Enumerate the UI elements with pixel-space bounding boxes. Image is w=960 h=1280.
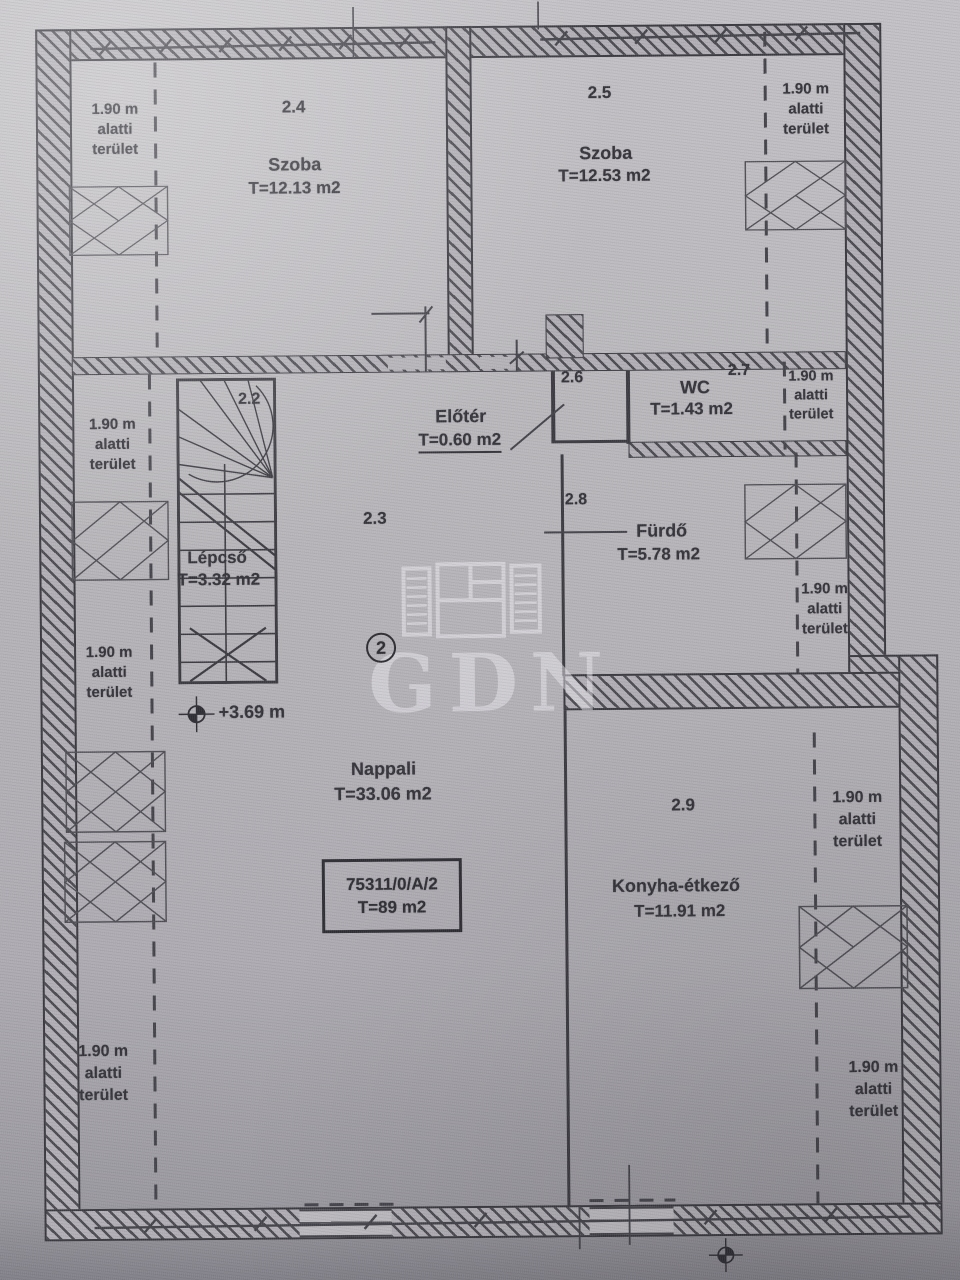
roof-window-symbol-left-mid — [65, 750, 167, 833]
wall-hall-bottom — [551, 440, 630, 444]
room-name-wc: WC — [680, 377, 710, 398]
room-area-wc: T=1.43 m2 — [650, 399, 733, 420]
headroom-label-top-right: 1.90 m alatti terület — [770, 79, 842, 140]
wall-wc-left — [626, 371, 631, 444]
floor-plan-drawing: GDN 2.4 Szoba T=12.13 m2 2.5 Szoba T=12.… — [0, 0, 960, 1280]
headroom-label-bottom-right: 1.90 m alatti terület — [835, 1057, 912, 1124]
parcel-area: T=89 m2 — [358, 895, 427, 919]
stairs-symbol — [176, 378, 278, 685]
room-area-hall: T=0.60 m2 — [418, 430, 501, 454]
wall-kitchen-left — [564, 710, 571, 1207]
level-value-upper: +3.69 m — [218, 702, 285, 724]
wall-bedroom-divider — [445, 26, 474, 372]
room-number-living: 2.3 — [363, 509, 387, 529]
level-marker-icon-bottom — [709, 1238, 743, 1272]
room-name-bedroom2: Szoba — [579, 143, 632, 164]
door-opening-entry — [480, 357, 518, 369]
headroom-label-top-left: 1.90 m alatti terület — [80, 100, 150, 161]
wall-wc-bottom — [628, 440, 846, 458]
room-name-stairs: Lépcső — [187, 548, 247, 568]
wall-bottom — [44, 1202, 942, 1241]
room-number-bedroom2: 2.5 — [588, 83, 612, 103]
room-number-stairs: 2.2 — [238, 391, 260, 409]
gdn-logo-watermark-icon — [397, 557, 548, 644]
headroom-label-bottom-left: 1.90 m alatti terület — [67, 1041, 140, 1108]
room-name-hall: Előtér — [435, 406, 486, 427]
headroom-label-bath: 1.90 m alatti terület — [792, 579, 858, 640]
window-bottom-left — [299, 1209, 391, 1238]
parcel-id: 75311/0/A/2 — [346, 872, 438, 896]
room-number-bedroom1: 2.4 — [282, 97, 306, 117]
wall-hall-left — [551, 371, 556, 442]
roof-window-symbol-left-upper — [71, 500, 170, 581]
roof-window-symbol-bedroom1 — [68, 185, 169, 256]
headroom-label-wc: 1.90 m alatti terület — [780, 367, 842, 424]
roof-window-symbol-bath — [744, 483, 848, 560]
room-area-living: T=33.06 m2 — [334, 783, 432, 805]
room-number-bath: 2.8 — [565, 491, 587, 509]
room-number-wc: 2.7 — [728, 362, 750, 380]
roof-window-symbol-bedroom2 — [744, 160, 847, 231]
roof-window-symbol-kitchen — [798, 905, 909, 990]
room-name-living: Nappali — [351, 759, 416, 781]
floor-number-badge: 2 — [366, 633, 396, 663]
room-area-bedroom1: T=12.13 m2 — [248, 178, 340, 199]
headroom-label-left-upper: 1.90 m alatti terület — [80, 415, 144, 476]
level-marker-icon-upper — [178, 696, 214, 732]
window-bottom-center — [589, 1206, 673, 1235]
door-opening-hall — [388, 357, 446, 369]
room-number-kitchen: 2.9 — [671, 795, 695, 815]
room-area-bedroom2: T=12.53 m2 — [558, 166, 650, 187]
scanned-floor-plan: GDN 2.4 Szoba T=12.13 m2 2.5 Szoba T=12.… — [0, 0, 960, 1280]
room-area-stairs: T=3.32 m2 — [177, 570, 260, 591]
room-name-kitchen: Konyha-étkező — [612, 875, 740, 897]
chimney-block — [545, 314, 583, 358]
headroom-label-kitchen: 1.90 m alatti terület — [821, 787, 894, 854]
dashed-line-bottom-b — [589, 1198, 675, 1202]
headroom-label-left-mid: 1.90 m alatti terület — [76, 643, 142, 704]
gdn-watermark-text: GDN — [368, 635, 616, 731]
parcel-label-box: 75311/0/A/2 T=89 m2 — [322, 858, 463, 933]
room-name-bath: Fürdő — [636, 520, 687, 541]
room-name-bedroom1: Szoba — [268, 154, 321, 175]
room-area-bath: T=5.78 m2 — [617, 544, 700, 565]
roof-window-symbol-left-lower — [64, 840, 168, 923]
room-area-kitchen: T=11.91 m2 — [634, 901, 725, 922]
room-number-hall: 2.6 — [561, 369, 583, 387]
